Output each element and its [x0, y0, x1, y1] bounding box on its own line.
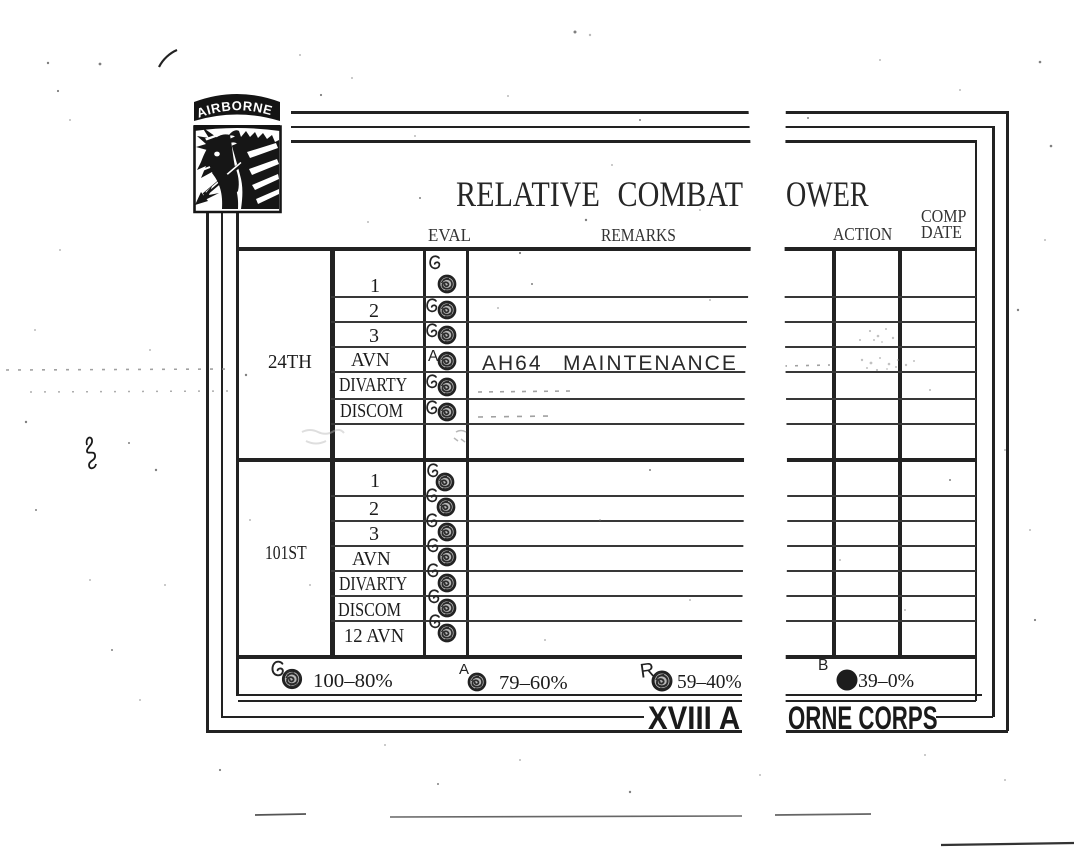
svg-text:A: A: [459, 661, 469, 678]
svg-text:B: B: [818, 657, 828, 674]
svg-text:A: A: [428, 348, 439, 365]
